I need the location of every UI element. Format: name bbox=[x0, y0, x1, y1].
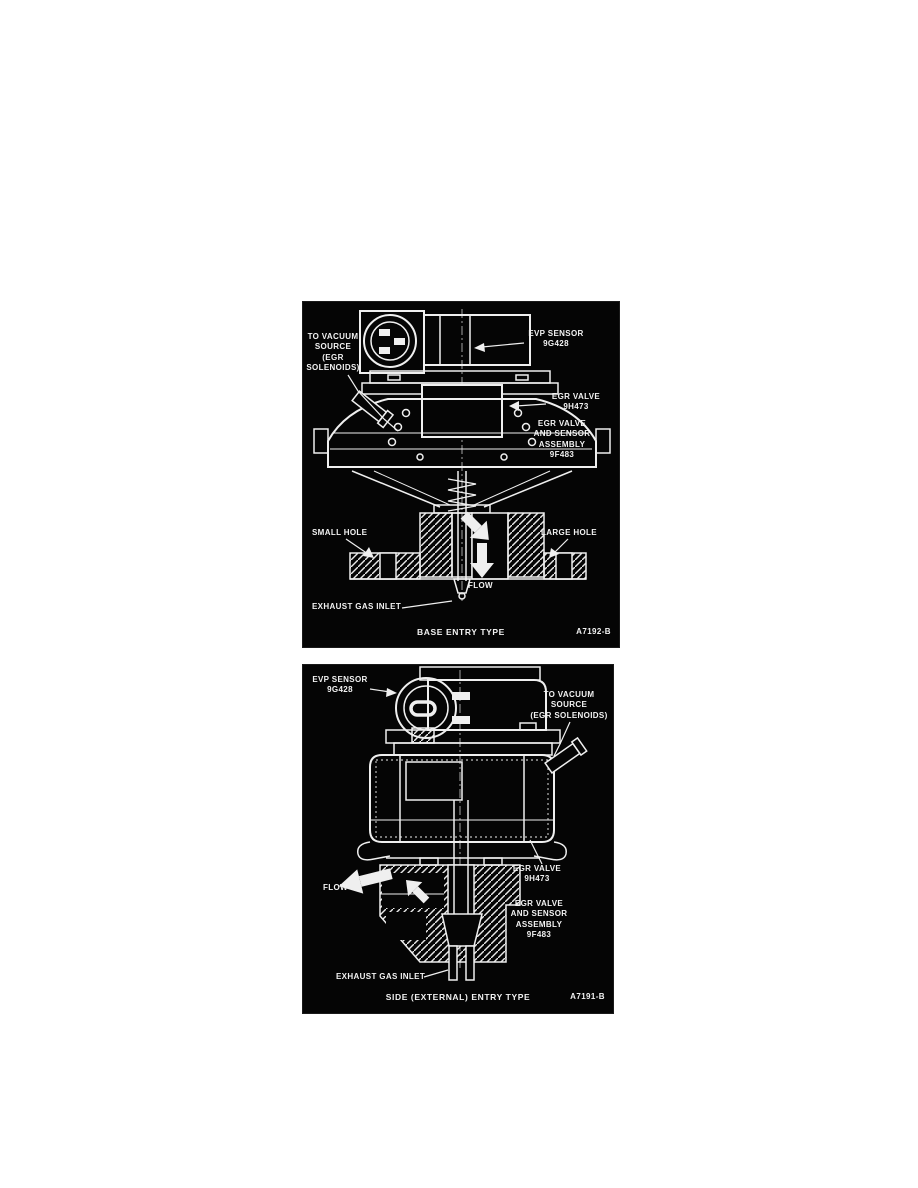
label-to-vacuum-source: TO VACUUM SOURCE (EGR SOLENOIDS) bbox=[526, 690, 612, 721]
label-egr-valve-sensor-assembly: EGR VALVE AND SENSOR ASSEMBLY 9F483 bbox=[508, 899, 570, 941]
label-large-hole: LARGE HOLE bbox=[541, 528, 597, 538]
label-egr-valve: EGR VALVE 9H473 bbox=[508, 864, 566, 885]
label-egr-valve: EGR VALVE 9H473 bbox=[548, 392, 604, 413]
figure-caption: BASE ENTRY TYPE bbox=[302, 627, 620, 637]
label-to-vacuum-source: TO VACUUM SOURCE (EGR SOLENOIDS) bbox=[304, 332, 362, 374]
document-page: TO VACUUM SOURCE (EGR SOLENOIDS) EVP SEN… bbox=[0, 0, 918, 1188]
label-flow: FLOW bbox=[468, 581, 493, 591]
label-flow: FLOW bbox=[323, 883, 348, 893]
label-evp-sensor: EVP SENSOR 9G428 bbox=[308, 675, 372, 696]
label-evp-sensor: EVP SENSOR 9G428 bbox=[524, 329, 588, 350]
figure-code: A7192-B bbox=[576, 627, 611, 636]
label-small-hole: SMALL HOLE bbox=[312, 528, 367, 538]
figure-base-entry-type: TO VACUUM SOURCE (EGR SOLENOIDS) EVP SEN… bbox=[302, 301, 620, 648]
label-exhaust-gas-inlet: EXHAUST GAS INLET bbox=[336, 972, 425, 982]
figure-code: A7191-B bbox=[570, 992, 605, 1001]
label-exhaust-gas-inlet: EXHAUST GAS INLET bbox=[312, 602, 401, 612]
label-egr-valve-sensor-assembly: EGR VALVE AND SENSOR ASSEMBLY 9F483 bbox=[532, 419, 592, 461]
figure-caption: SIDE (EXTERNAL) ENTRY TYPE bbox=[302, 992, 614, 1002]
figure-side-entry-type: EVP SENSOR 9G428 TO VACUUM SOURCE (EGR S… bbox=[302, 664, 614, 1014]
